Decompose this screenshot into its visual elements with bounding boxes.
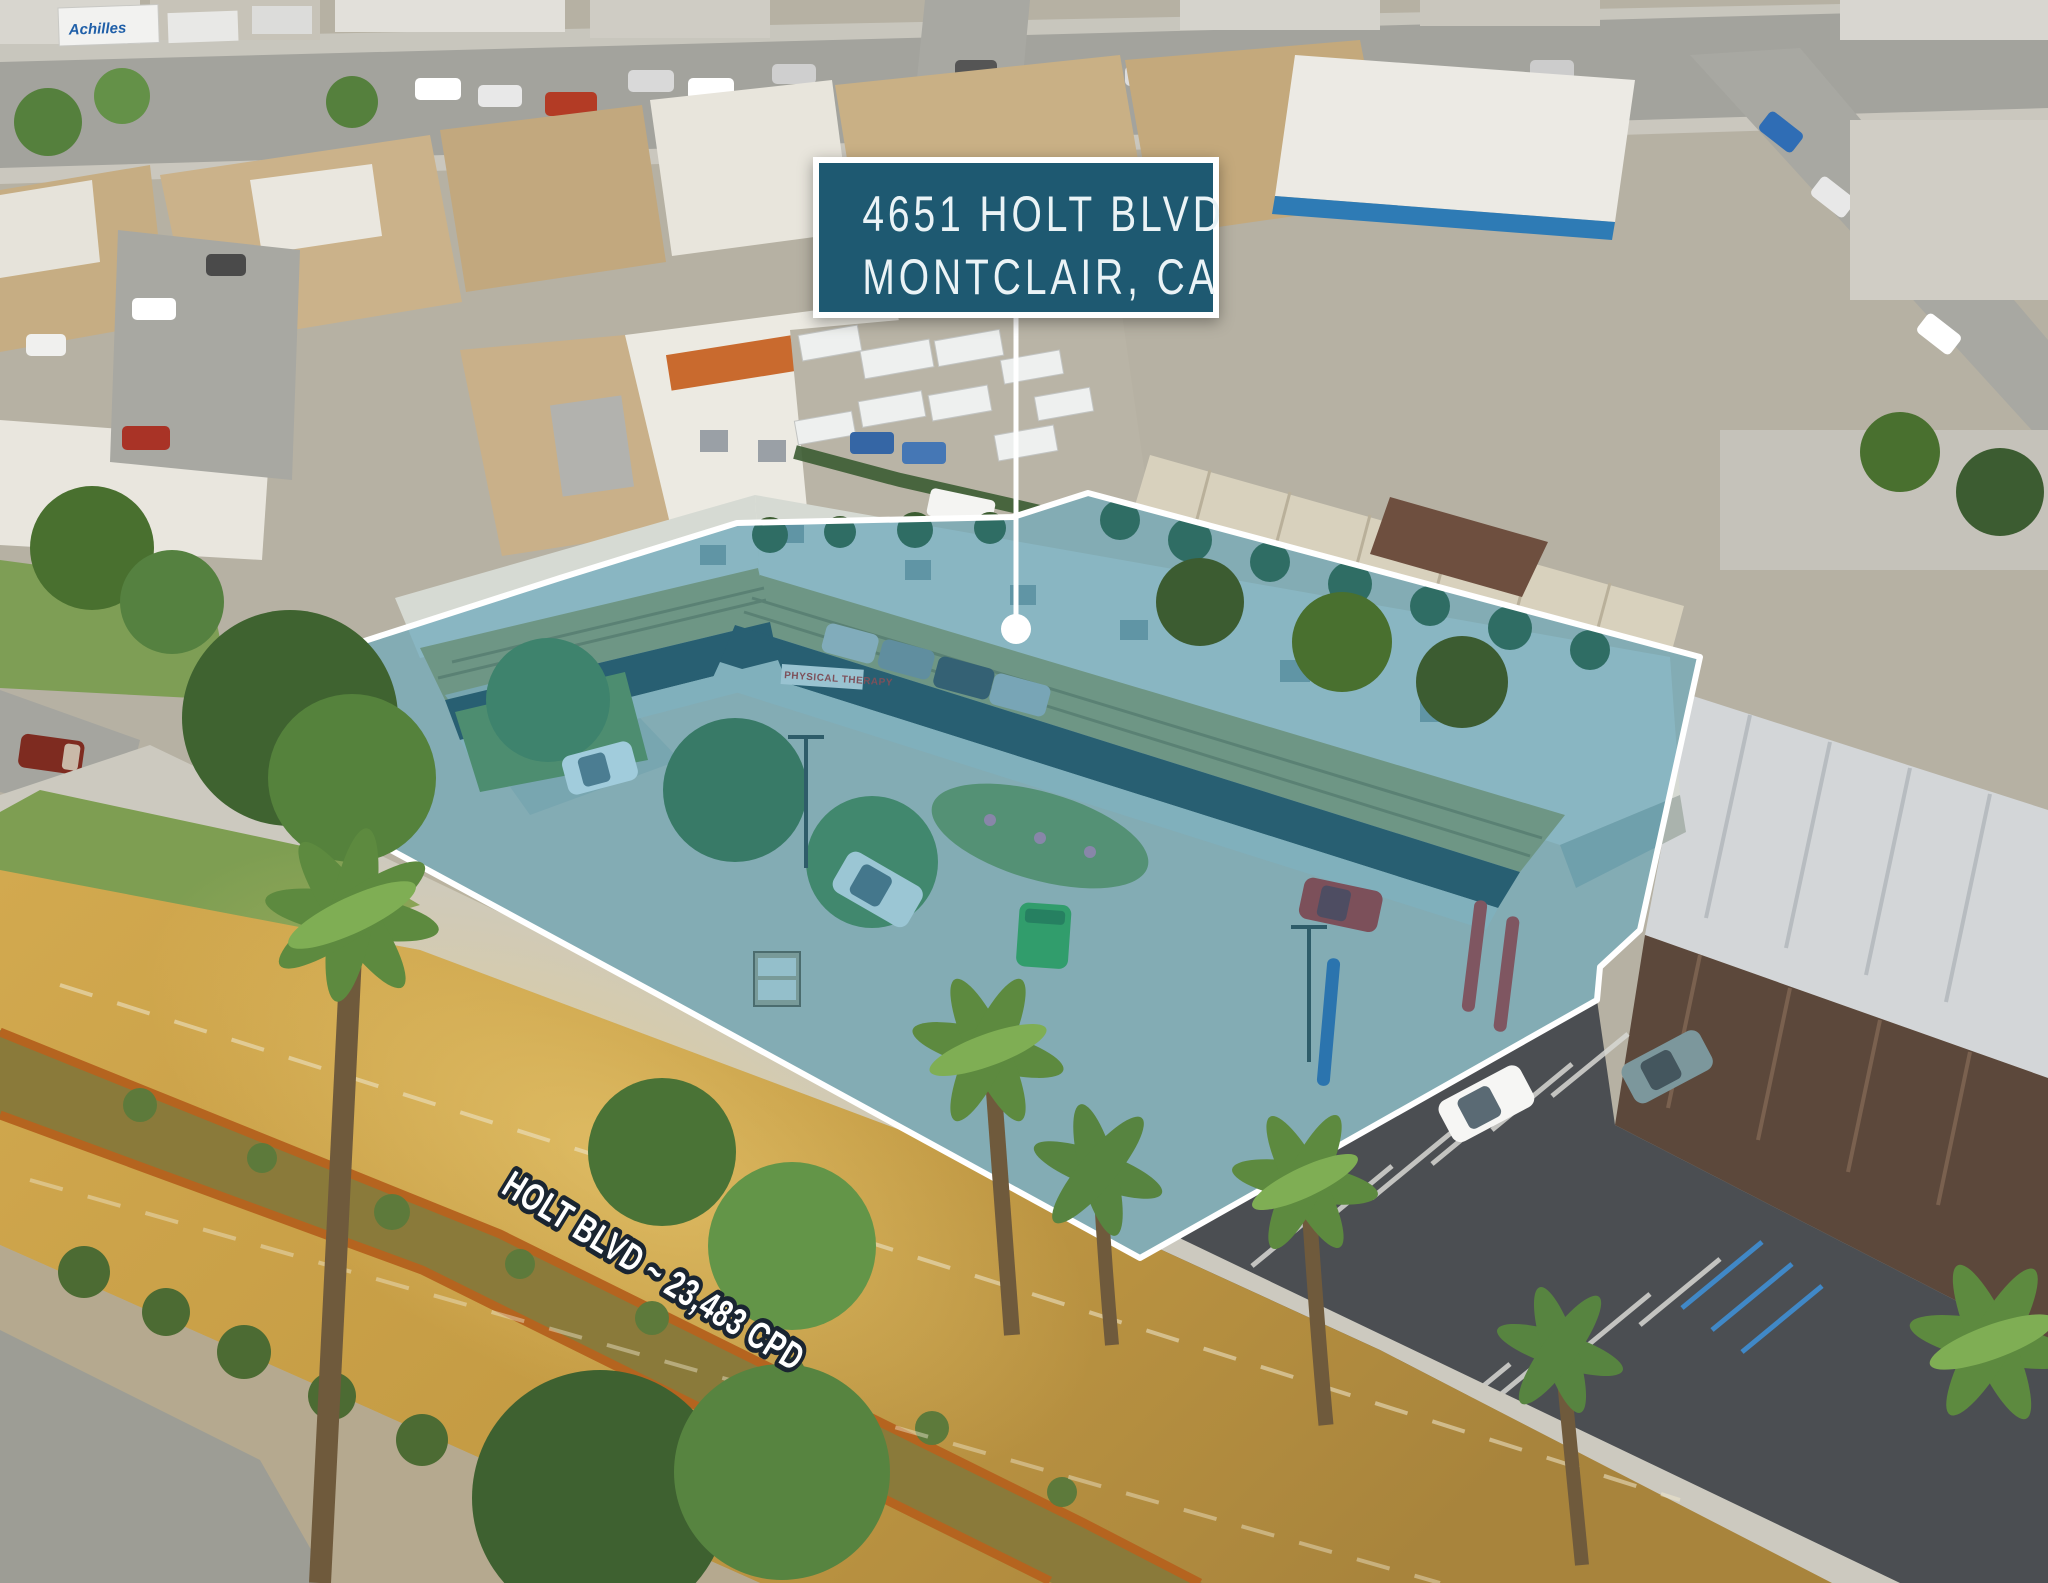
blue-trim-building	[1272, 55, 1635, 240]
callout-address-line2: MONTCLAIR, CA	[862, 248, 1169, 306]
truck-brand-text: Achilles	[67, 20, 126, 39]
aerial-photo: Achilles	[0, 0, 2048, 1583]
address-callout: 4651 HOLT BLVD MONTCLAIR, CA	[813, 157, 1219, 318]
callout-address-line1: 4651 HOLT BLVD	[862, 185, 1169, 243]
truck-trailer: Achilles	[58, 5, 159, 46]
leader-dot	[1001, 614, 1031, 644]
